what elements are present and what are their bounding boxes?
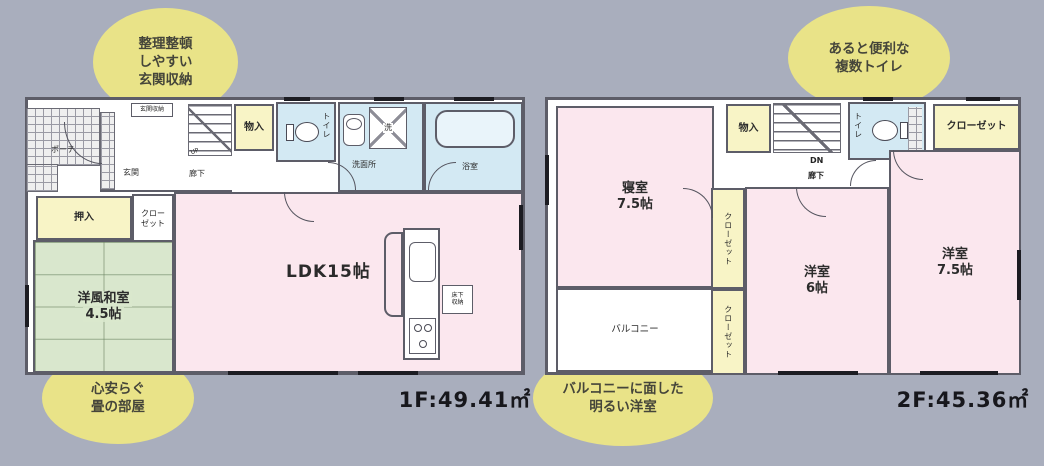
west-room-75-label-line1: 洋室: [942, 247, 968, 263]
callout-line: 明るい洋室: [589, 398, 657, 416]
underfloor-storage-box: 床下 収納: [442, 285, 473, 314]
window-mark: [374, 97, 404, 101]
bedroom-label-line1: 寝室: [622, 181, 648, 197]
window-mark: [778, 371, 858, 375]
balcony: バルコニー: [556, 288, 714, 372]
window-mark: [358, 371, 418, 375]
closet-2f-mid: クローゼット: [711, 188, 745, 289]
hallway-1f-label: 廊下: [189, 169, 205, 179]
window-mark: [228, 371, 338, 375]
floorplan-page: { "background": "#a9aebd", "colors": { "…: [0, 0, 1044, 466]
ldk-label: LDK15帖: [286, 262, 371, 282]
laundry-label: 洗: [383, 123, 393, 133]
entrance-tile: [100, 112, 115, 190]
callout-line: しやすい: [139, 53, 193, 71]
storage-1f: 物入: [234, 104, 274, 151]
toilet-2f-door-arc: [850, 160, 876, 186]
callout-line: 畳の部屋: [91, 398, 145, 416]
stove-burner-icon: [414, 324, 422, 332]
callout-line: 玄関収納: [139, 71, 193, 89]
kitchen-counter: [384, 232, 403, 317]
balcony-label: バルコニー: [611, 324, 658, 335]
window-mark: [25, 285, 29, 327]
stairs-2f: [773, 103, 841, 153]
window-mark: [863, 97, 893, 101]
toilet-1f: トイレ: [276, 102, 336, 162]
closet-2f-bottom: クローゼット: [711, 289, 745, 375]
west-room-6-label-line1: 洋室: [804, 265, 830, 281]
floor2-plan: 寝室 7.5帖 バルコニー 物入 DN 廊下 トイレ クローゼット クローゼット…: [545, 97, 1021, 375]
closet-1f: クロー ゼット: [132, 194, 174, 243]
window-mark: [966, 97, 1000, 101]
window-mark: [545, 155, 549, 205]
callout-line: 複数トイレ: [835, 58, 903, 76]
floor2-area-label: 2F:45.36㎡: [878, 384, 1044, 414]
toilet-tank-icon: [286, 124, 294, 141]
toilet-bowl-icon: [295, 122, 319, 142]
window-mark: [284, 97, 310, 101]
callout-line: バルコニーに面した: [562, 380, 683, 398]
toilet-tank-icon: [900, 122, 908, 139]
entrance-storage-label: 玄関収納: [140, 107, 164, 114]
stove-icon: [409, 318, 436, 354]
kitchen-unit: [403, 228, 440, 360]
closet-2f-top-label: クローゼット: [947, 121, 1007, 133]
ldk-room: LDK15帖: [174, 192, 523, 373]
laundry-machine-icon: 洗: [369, 107, 407, 149]
window-mark: [1017, 250, 1021, 300]
tatami-room-label-line1: 洋風和室: [75, 291, 131, 307]
window-mark: [519, 205, 523, 250]
callout-line: あると便利な: [829, 40, 910, 58]
stove-burner-icon: [424, 324, 432, 332]
kitchen-sink-icon: [409, 242, 436, 282]
floor1-plan: ポーチ 玄関 玄関収納 廊下 UP 物入 トイレ 洗 洗面所 浴室: [25, 97, 525, 375]
west-room-6-label-line2: 6帖: [806, 281, 828, 297]
tatami-room-label-line2: 4.5帖: [83, 307, 123, 323]
callout-line: 心安らぐ: [91, 380, 145, 398]
closet-2f-mid-label: クローゼット: [723, 212, 733, 266]
west-room-75-label-line2: 7.5帖: [937, 263, 973, 279]
storage-2f: 物入: [726, 104, 771, 153]
closet-1f-label-line1: クロー: [141, 209, 165, 219]
bedroom-label-line2: 7.5帖: [617, 197, 653, 213]
stove-burner-icon: [419, 340, 427, 348]
washbasin-bowl-icon: [346, 118, 362, 130]
underfloor-storage-line2: 収納: [451, 300, 463, 307]
toilet-1f-label: トイレ: [321, 112, 331, 139]
bathtub-icon: [435, 110, 515, 148]
tatami-room: 洋風和室 4.5帖: [33, 240, 174, 373]
storage-2f-label: 物入: [739, 123, 759, 135]
entrance-label: 玄関: [123, 168, 139, 178]
toilet-bowl-icon: [872, 120, 898, 141]
callout-line: 整理整頓: [139, 35, 193, 53]
stairs-dn-label: DN: [810, 156, 823, 165]
closet-2f-bottom-label: クローゼット: [723, 305, 733, 359]
callout-multiple-toilets: あると便利な 複数トイレ: [788, 6, 950, 110]
bathroom-label: 浴室: [462, 162, 478, 172]
west-room-75: 洋室 7.5帖: [889, 150, 1021, 375]
oshiire-label: 押入: [74, 212, 94, 224]
window-mark: [920, 371, 998, 375]
washroom-label: 洗面所: [352, 160, 376, 170]
window-mark: [454, 97, 494, 101]
floor1-area-label: 1F:49.41㎡: [380, 384, 550, 414]
storage-1f-label: 物入: [244, 122, 264, 134]
closet-1f-label-line2: ゼット: [141, 219, 165, 229]
closet-2f-top: クローゼット: [933, 104, 1020, 150]
toilet-2f-label: トイレ: [853, 112, 863, 139]
hallway-2f-label: 廊下: [808, 170, 824, 181]
porch-step: [26, 164, 58, 192]
oshiire: 押入: [36, 196, 132, 240]
